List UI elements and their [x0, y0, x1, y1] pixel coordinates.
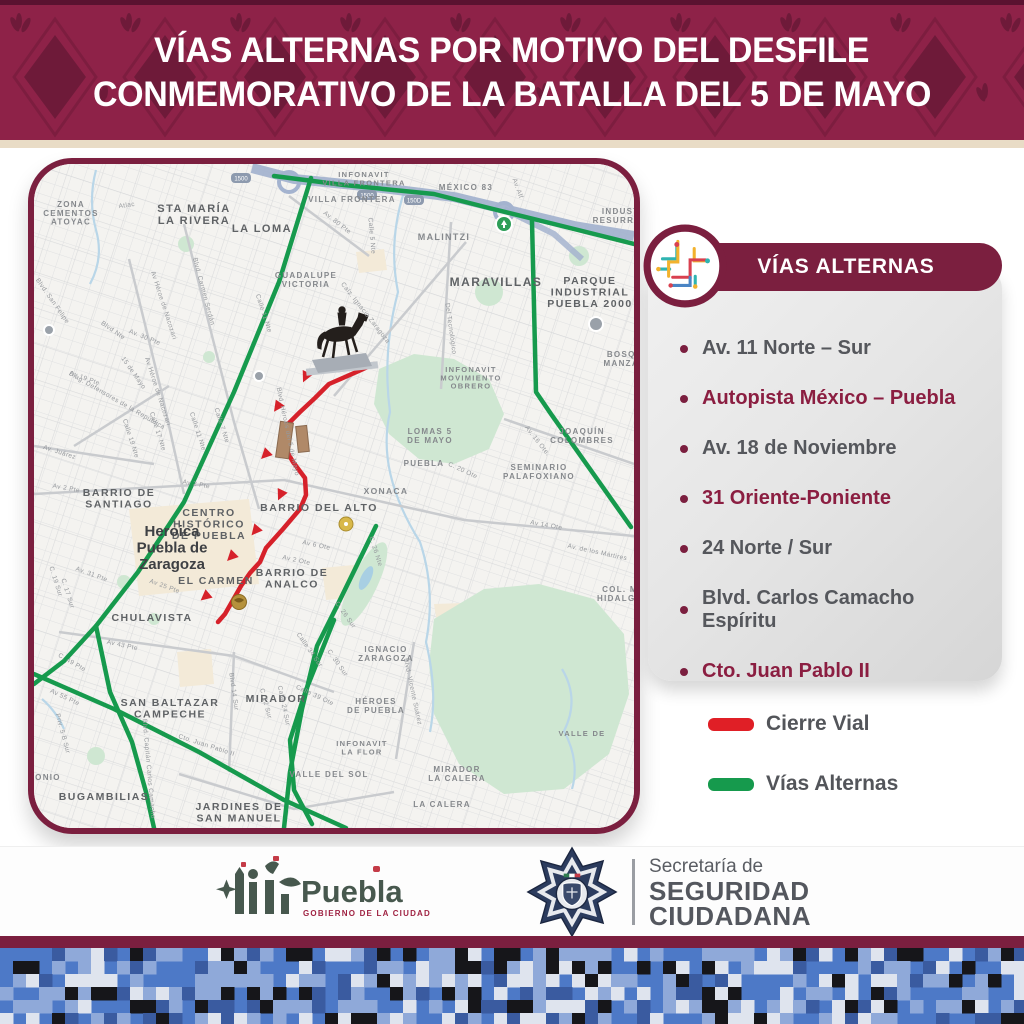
- bullet-icon: [680, 668, 688, 676]
- panel-body: Av. 11 Norte – SurAutopista México – Pue…: [648, 265, 1002, 681]
- map-label: CHULAVISTA: [111, 612, 192, 624]
- route-item-3: 31 Oriente-Poniente: [680, 487, 982, 510]
- bullet-icon: [680, 345, 688, 353]
- header-cream-strip: [0, 140, 1024, 148]
- svg-text:1500: 1500: [234, 177, 248, 183]
- ssc-line1: Secretaría de: [649, 856, 811, 878]
- map-label: STA MARÍALA RIVERA: [157, 202, 230, 227]
- map-label: VILLA FRONTERA: [308, 195, 396, 204]
- ssc-logo-block: Secretaría de SEGURIDAD CIUDADANA: [526, 846, 811, 938]
- alternate-routes-list: Av. 11 Norte – SurAutopista México – Pue…: [680, 337, 982, 683]
- map-label: VALLE DE: [559, 729, 606, 738]
- highway-shield: 150D: [404, 195, 424, 205]
- puebla-map: 15001500150DZONACEMENTOSATOYACSTA MARÍAL…: [34, 164, 634, 828]
- panel-title: VÍAS ALTERNAS: [757, 255, 934, 279]
- bullet-icon: [680, 395, 688, 403]
- map-label: HeroicaPuebla deZaragoza: [137, 523, 208, 573]
- puebla-government-logo: Puebla GOBIERNO DE LA CIUDAD: [213, 854, 431, 930]
- bullet-icon: [680, 445, 688, 453]
- panel-title-bar: VÍAS ALTERNAS: [690, 243, 1002, 291]
- maroon-divider-bar: [0, 936, 1024, 948]
- map-label: COL. MHIDALGO: [597, 585, 634, 603]
- logo-divider: [632, 859, 635, 925]
- routes-map-icon: [642, 223, 728, 309]
- poi-marker-icon: [44, 325, 54, 335]
- route-item-5: Blvd. Carlos Camacho Espíritu: [680, 587, 982, 633]
- legend-label: Vías Alternas: [766, 772, 898, 796]
- map-label: PUEBLA: [404, 459, 445, 468]
- legend-swatch: [708, 778, 754, 791]
- map-label: LOMAS 5DE MAYO: [407, 427, 453, 445]
- header-banner: VÍAS ALTERNAS POR MOTIVO DEL DESFILE CON…: [0, 0, 1024, 140]
- map-label: HÉROESDE PUEBLA: [347, 697, 405, 715]
- map-label: BARRIO DESANTIAGO: [83, 487, 155, 511]
- ssc-line3: CIUDADANA: [649, 904, 811, 929]
- map-label: GUADALUPEVICTORIA: [275, 271, 337, 289]
- svg-text:Puebla: Puebla: [301, 874, 403, 909]
- route-item-2: Av. 18 de Noviembre: [680, 437, 982, 460]
- bullet-icon: [680, 495, 688, 503]
- map-label: BARRIO DEANALCO: [256, 567, 328, 591]
- route-item-6: Cto. Juan Pablo II: [680, 660, 982, 683]
- map-label: BUGAMBILIAS: [59, 791, 150, 803]
- legend-row-1: Vías Alternas: [708, 772, 898, 796]
- blue-camo-strip: [0, 948, 1024, 1024]
- map-legend: Cierre VialVías Alternas: [708, 712, 898, 832]
- footer: Puebla GOBIERNO DE LA CIUDAD Secretaría …: [0, 846, 1024, 937]
- map-label: JARDINES DESAN MANUEL: [195, 801, 282, 825]
- map-label: SAN BALTAZARCAMPECHE: [121, 697, 220, 721]
- bullet-icon: [680, 545, 688, 553]
- map-label: EL CARMEN: [178, 575, 254, 587]
- police-star-badge-icon: [526, 846, 618, 938]
- map-label: MONIO: [34, 773, 61, 782]
- legend-swatch: [708, 718, 754, 731]
- poi-marker-icon: [589, 317, 603, 331]
- map-label: VALLE DEL SOL: [289, 770, 368, 779]
- map-label: MIRADOR: [246, 693, 307, 705]
- map-label: BARRIO DEL ALTO: [260, 502, 378, 514]
- svg-text:150D: 150D: [407, 199, 422, 205]
- map-label: MÉXICO 83: [439, 183, 493, 192]
- legend-label: Cierre Vial: [766, 712, 870, 736]
- bullet-icon: [680, 606, 688, 614]
- title-line-2: CONMEMORATIVO DE LA BATALLA DEL 5 DE MAY…: [93, 73, 931, 117]
- route-item-4: 24 Norte / Sur: [680, 537, 982, 560]
- poi-marker-icon: [254, 371, 264, 381]
- map-label: JOAQUÍNCOLOMBRES: [550, 427, 614, 445]
- map-label: MALINTZI: [418, 232, 470, 242]
- map-label: MARAVILLAS: [450, 275, 543, 289]
- map-label: SEMINARIOPALAFOXIANO: [503, 463, 575, 481]
- map-label: BOSQ.MANZA.: [604, 350, 634, 368]
- title-line-1: VÍAS ALTERNAS POR MOTIVO DEL DESFILE: [154, 29, 869, 73]
- ssc-line2: SEGURIDAD: [649, 879, 811, 904]
- svg-text:GOBIERNO DE LA CIUDAD: GOBIERNO DE LA CIUDAD: [303, 909, 431, 918]
- map-label: LA LOMA: [232, 223, 292, 235]
- legend-row-0: Cierre Vial: [708, 712, 898, 736]
- map-label: INFONAVITLA FLOR: [336, 739, 388, 756]
- route-item-0: Av. 11 Norte – Sur: [680, 337, 982, 360]
- highway-shield: 1500: [231, 173, 251, 183]
- map-label: MIRADORLA CALERA: [428, 765, 486, 783]
- map-label: LA CALERA: [413, 800, 471, 809]
- route-item-1: Autopista México – Puebla: [680, 387, 982, 410]
- map-label: XONACA: [364, 486, 409, 496]
- puebla-map-card: 15001500150DZONACEMENTOSATOYACSTA MARÍAL…: [28, 158, 640, 834]
- vias-alternas-panel: VÍAS ALTERNAS Av. 11 Norte – SurAutopist…: [648, 243, 1002, 681]
